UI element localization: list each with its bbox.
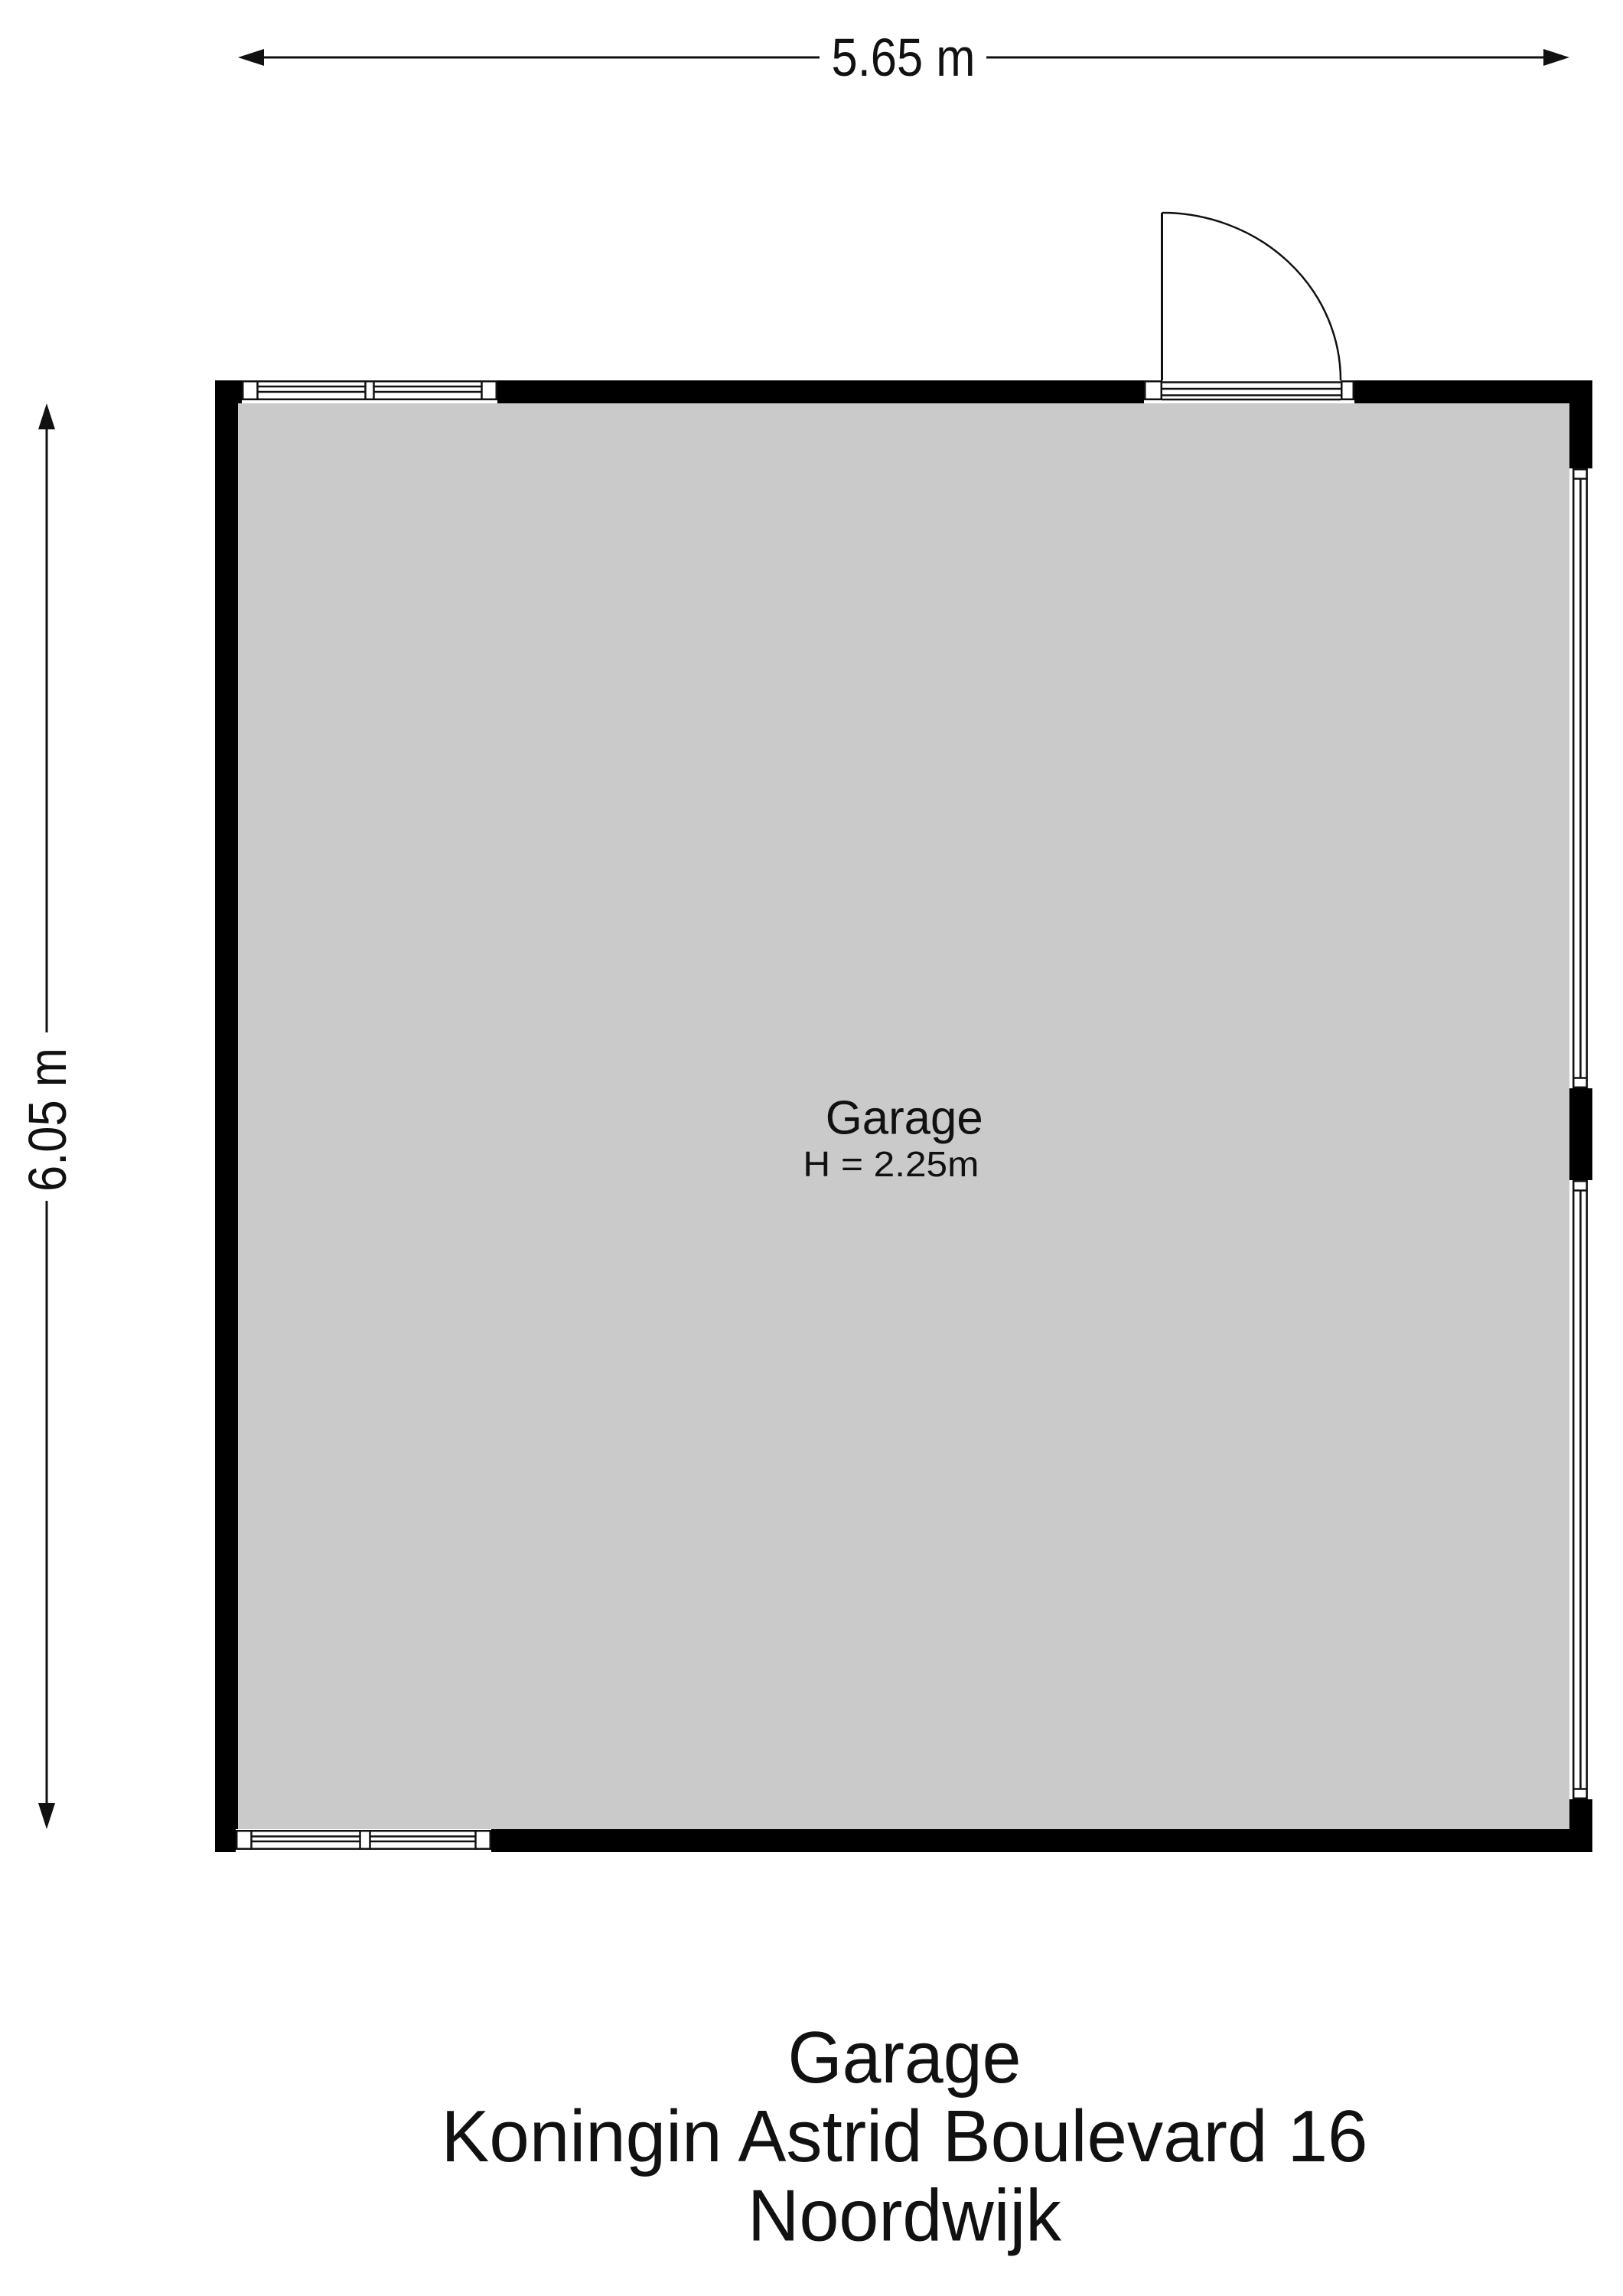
svg-text:5.65 m: 5.65 m [832,28,976,87]
svg-text:Koningin Astrid Boulevard 16: Koningin Astrid Boulevard 16 [442,2096,1368,2177]
svg-text:Garage: Garage [788,2017,1022,2099]
svg-text:H = 2.25m: H = 2.25m [803,1144,979,1184]
svg-text:Garage: Garage [826,1092,983,1145]
svg-text:Noordwijk: Noordwijk [748,2176,1061,2257]
svg-text:6.05 m: 6.05 m [18,1048,77,1192]
